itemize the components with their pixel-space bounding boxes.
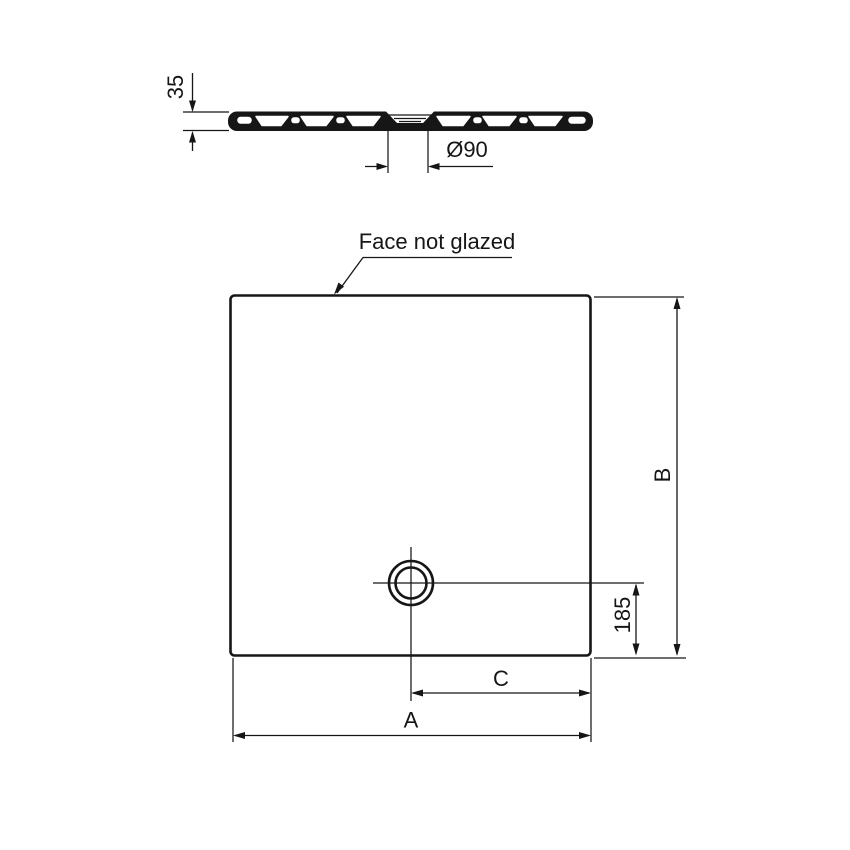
arrowhead-right-icon	[579, 732, 591, 739]
drain-diameter-dimension: Ø90	[365, 131, 493, 173]
drawing-canvas: 35	[0, 0, 850, 850]
profile-slot	[474, 118, 481, 123]
profile-slot	[238, 118, 251, 124]
depth-dimension: B	[594, 297, 686, 658]
arrowhead-up-icon	[189, 131, 196, 143]
arrowhead-down-icon	[674, 644, 681, 656]
arrowhead-down-icon	[189, 101, 196, 113]
arrowhead-up-icon	[674, 297, 681, 309]
arrowhead-down-icon	[633, 644, 640, 656]
arrowhead-left-icon	[428, 163, 440, 170]
profile-slot	[337, 118, 344, 123]
drain-diameter-value: Ø90	[446, 137, 488, 162]
tray-profile	[228, 112, 593, 132]
profile-slot	[292, 118, 299, 123]
drain-offset-vertical-value: 185	[610, 597, 635, 634]
leader-line	[337, 258, 512, 294]
drain-offset-horizontal-dimension: C	[411, 666, 591, 697]
profile-slot	[520, 118, 527, 123]
width-value: A	[404, 708, 419, 733]
plan-view: Face not glazed B 185	[231, 229, 687, 742]
arrowhead-right-icon	[579, 690, 591, 697]
drain-offset-vertical-dimension: 185	[610, 584, 640, 656]
side-profile-view: 35	[163, 73, 593, 173]
arrowhead-left-icon	[411, 690, 423, 697]
leader-arrowhead-icon	[334, 283, 344, 295]
depth-value: B	[650, 468, 675, 483]
arrowhead-up-icon	[633, 584, 640, 596]
arrowhead-right-icon	[377, 163, 389, 170]
face-note-label: Face not glazed	[359, 229, 516, 254]
face-note-callout: Face not glazed	[334, 229, 515, 295]
drain-offset-horizontal-value: C	[493, 666, 509, 691]
profile-slot	[569, 118, 585, 124]
arrowhead-left-icon	[233, 732, 245, 739]
width-dimension: A	[233, 658, 591, 742]
thickness-value: 35	[163, 75, 188, 99]
shower-tray-technical-drawing: 35	[0, 0, 850, 850]
